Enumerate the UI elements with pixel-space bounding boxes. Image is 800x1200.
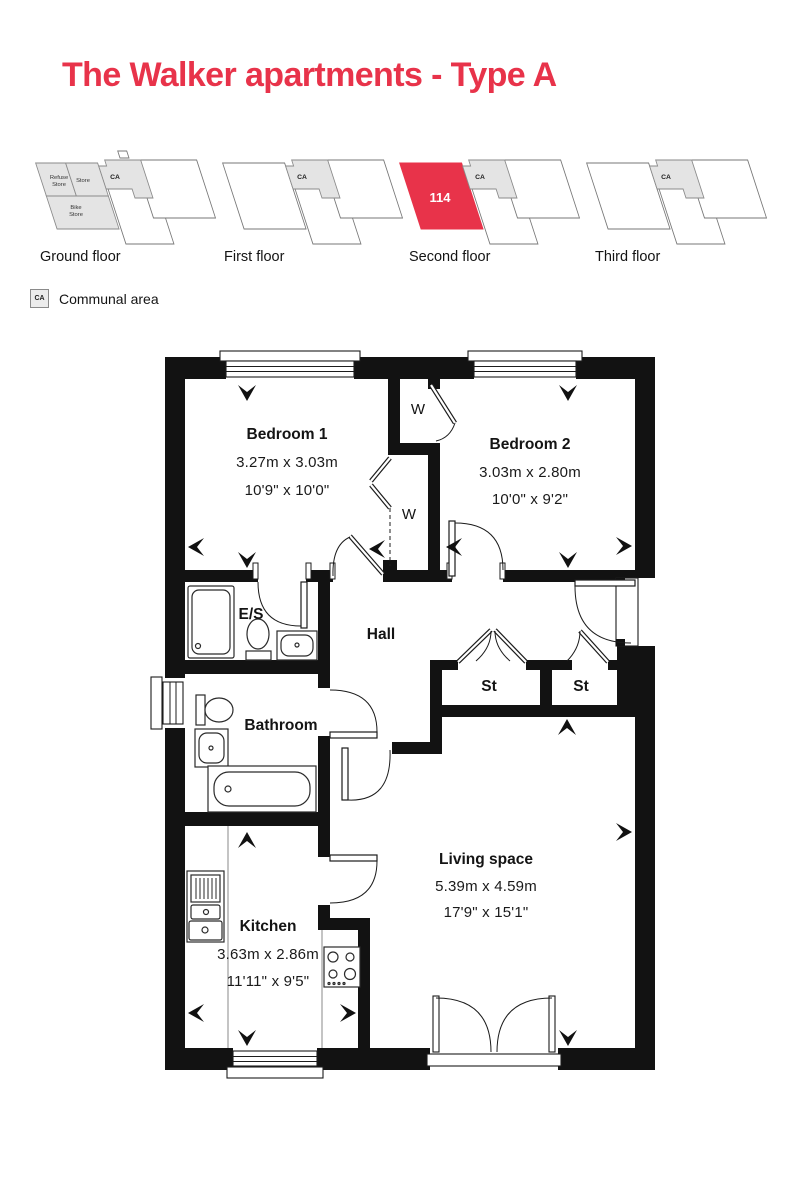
arrow-icon [238,832,256,848]
communal-area-tag: CA [110,174,120,181]
store-label: Store [76,178,90,184]
hall-label: Hall [367,626,395,643]
wardrobe2-label: W [411,401,426,418]
room-dim-metric: 3.27m x 3.03m [236,454,338,471]
bathroom-toilet-icon [196,695,233,725]
bedroom1-door [330,536,383,579]
arrow-icon [616,823,632,841]
legend: CA Communal area [30,289,159,308]
refuse-store-label: Refuse [50,175,68,181]
unit-number: 114 [430,190,452,205]
room-dim-metric: 5.39m x 4.59m [435,878,537,895]
ensuite-label: E/S [239,606,264,623]
store1-label: St [481,678,497,695]
communal-area-symbol: CA [30,289,49,308]
arrow-icon [188,538,204,556]
floor-label-second: Second floor [409,249,491,265]
room-dim-metric: 3.03m x 2.80m [479,464,581,481]
floor-label-third: Third floor [595,249,660,265]
floor-selector: Refuse Store Store Bike Store CA Ground … [20,150,790,272]
floor-thumbnail-second: 114 CA Second floor [399,160,588,265]
french-doors [427,996,561,1066]
store2-bifold-door [567,631,608,662]
refuse-store-label2: Store [52,182,66,188]
floor-plan: Bedroom 1 3.27m x 3.03m 10'9" x 10'0" Be… [150,340,665,1085]
room-name: Bedroom 1 [247,426,328,443]
room-name: Bedroom 2 [490,436,571,453]
hob-icon [324,947,360,987]
shower-icon [188,586,234,658]
ensuite-toilet-icon [246,619,271,660]
communal-area-tag: CA [475,174,485,181]
bathtub-icon [208,766,316,812]
bedroom1-window-icon [220,351,360,377]
wardrobe2-bifold-door [431,385,455,441]
room-living: Living space 5.39m x 4.59m 17'9" x 15'1" [435,851,537,921]
communal-area-tag: CA [661,174,671,181]
kitchen-door [330,855,377,903]
room-dim-imperial: 10'9" x 10'0" [245,482,330,499]
arrow-icon [188,1004,204,1022]
room-name: Living space [439,851,533,868]
arrow-icon [559,385,577,401]
room-dim-imperial: 10'0" x 9'2" [492,491,568,508]
arrow-icon [238,385,256,401]
room-kitchen: Kitchen 3.63m x 2.86m 11'11" x 9'5" [217,918,319,990]
room-dim-metric: 3.63m x 2.86m [217,946,319,963]
room-dim-imperial: 11'11" x 9'5" [227,973,310,990]
room-bedroom1: Bedroom 1 3.27m x 3.03m 10'9" x 10'0" [236,426,338,499]
floor-thumbnail-ground: Refuse Store Store Bike Store CA Ground … [32,151,224,265]
arrow-icon [559,552,577,568]
bathroom-basin-icon [195,729,228,767]
store2-label: St [573,678,589,695]
arrow-icon [616,537,632,555]
wardrobe1-label: W [402,506,417,523]
bedroom2-window-icon [468,351,582,377]
arrow-icon [340,1004,356,1022]
worktop-lines [228,826,322,1048]
bathroom-label: Bathroom [244,717,317,734]
living-door [342,748,390,800]
arrow-icon [559,1030,577,1046]
room-bedroom2: Bedroom 2 3.03m x 2.80m 10'0" x 9'2" [479,436,581,508]
arrow-icon [369,540,385,558]
arrow-icon [238,1030,256,1046]
bike-store-label2: Store [69,212,83,218]
floor-label-first: First floor [224,249,285,265]
store1-bifold-door [458,630,526,662]
bathroom-door [330,690,377,738]
room-name: Kitchen [240,918,297,935]
bike-store-label: Bike [70,205,81,211]
kitchen-window-icon [227,1051,323,1078]
brochure-page: The Walker apartments - Type A Refuse St… [0,0,800,1200]
bathroom-window-icon [151,677,183,729]
floor-thumbnail-first: CA First floor [222,160,411,265]
page-title: The Walker apartments - Type A [62,56,557,95]
room-dim-imperial: 17'9" x 15'1" [444,904,529,921]
communal-area-tag: CA [297,174,307,181]
kitchen-sink-icon [187,871,224,942]
legend-label: Communal area [59,291,159,307]
floor-label-ground: Ground floor [40,249,121,265]
flag-icon [118,151,129,158]
ensuite-basin-icon [277,631,317,660]
arrow-icon [558,719,576,735]
floor-thumbnail-third: CA Third floor [586,160,775,265]
